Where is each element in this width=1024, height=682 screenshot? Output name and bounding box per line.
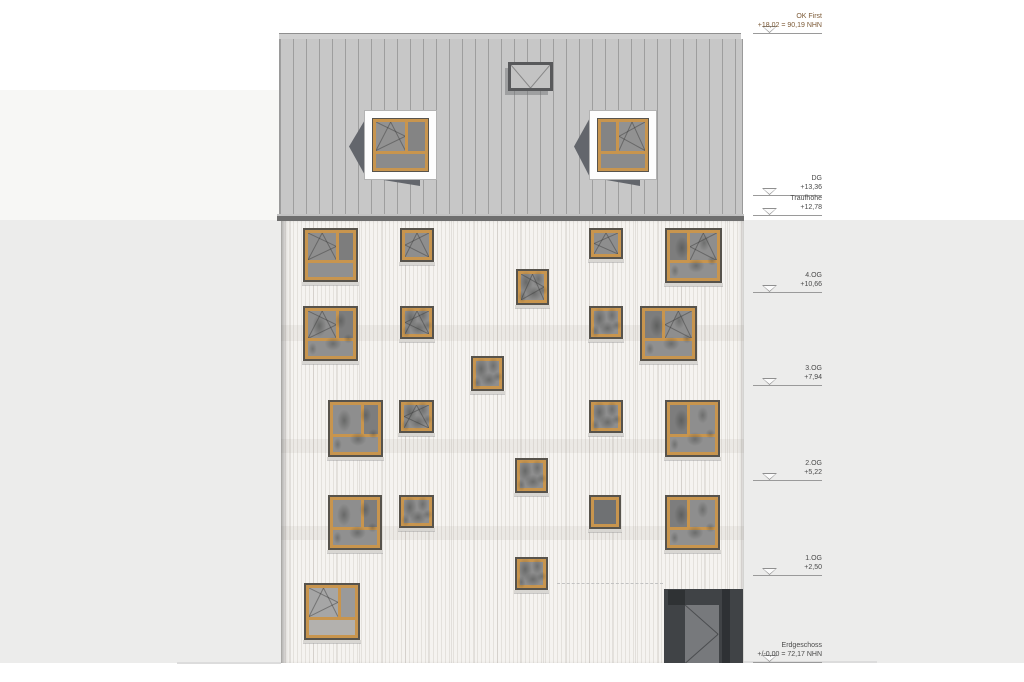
glazing-pane <box>520 562 543 585</box>
marker-value: +2,50 <box>804 564 822 572</box>
window <box>665 228 722 283</box>
window <box>589 306 623 339</box>
glazing-pane <box>670 263 717 278</box>
window-sill <box>470 391 505 394</box>
window <box>471 356 504 391</box>
glazing-pane <box>308 263 353 277</box>
marker-label: 3.OG <box>804 365 822 373</box>
window-panes <box>405 311 429 334</box>
dormer-frame <box>590 111 656 179</box>
glazing-pane <box>690 500 715 527</box>
dormer-window <box>372 118 429 172</box>
window-panes <box>333 405 378 452</box>
glazing-pane <box>333 530 377 545</box>
window-sill <box>514 493 549 496</box>
glazing-pane <box>308 233 336 260</box>
window-sill <box>588 433 624 436</box>
glazing-pane <box>376 122 405 151</box>
window <box>328 495 382 550</box>
glazing-pane <box>601 154 645 168</box>
window <box>400 228 434 262</box>
window-panes <box>645 311 692 356</box>
window <box>515 557 548 590</box>
marker-value: +/-0,00 = 72,17 NHN <box>757 651 822 659</box>
glazing-pane <box>690 233 717 260</box>
door-side-stripe <box>722 589 731 663</box>
roof-hatch <box>508 62 553 91</box>
window <box>515 458 548 493</box>
glazing-pane <box>619 122 645 151</box>
door-leaf <box>685 605 718 663</box>
glazing-pane <box>339 311 353 338</box>
window-sill <box>399 262 435 265</box>
marker-value: +13,36 <box>800 184 822 192</box>
window-sill <box>664 457 721 460</box>
window-sill <box>639 361 698 364</box>
glazing-pane <box>645 311 662 338</box>
datum-line <box>753 662 822 663</box>
window-sill <box>515 305 550 308</box>
window-panes <box>594 311 618 334</box>
glazing-pane <box>476 361 499 386</box>
datum-line <box>753 33 822 34</box>
glazing-pane <box>364 500 377 527</box>
window <box>303 306 358 361</box>
marker-text: Traufhöhe+12,78 <box>790 195 822 212</box>
glazing-pane <box>601 122 616 151</box>
marker-text: 1.OG+2,50 <box>804 555 822 572</box>
window <box>589 228 623 259</box>
marker-label: OK First <box>758 13 822 21</box>
glazing-pane <box>308 311 336 338</box>
window-sill <box>398 528 435 531</box>
marker-label: 4.OG <box>800 272 822 280</box>
glazing-pane <box>670 437 715 452</box>
window-panes <box>670 405 715 452</box>
window <box>328 400 383 457</box>
glazing-pane <box>645 341 692 356</box>
datum-line <box>753 480 822 481</box>
window <box>400 306 434 339</box>
marker-text: 2.OG+5,22 <box>804 460 822 477</box>
glazing-pane <box>309 588 338 617</box>
marker-value: +12,78 <box>790 204 822 212</box>
window-sill <box>327 457 384 460</box>
window-sill <box>303 640 361 643</box>
glazing-pane <box>405 311 429 334</box>
window <box>640 306 697 361</box>
window <box>304 583 360 640</box>
glazing-pane <box>308 341 353 356</box>
glazing-pane <box>690 405 715 434</box>
datum-triangle-icon-inner <box>764 189 776 194</box>
marker-label: Traufhöhe <box>790 195 822 203</box>
glazing-pane <box>364 405 378 434</box>
ground-line <box>177 662 281 664</box>
eaves-band <box>277 214 744 221</box>
window-panes <box>333 500 377 545</box>
window-panes <box>594 233 618 254</box>
marker-text: OK First+18,02 = 90,19 NHN <box>758 13 822 30</box>
glazing-pane <box>309 620 355 635</box>
glazing-pane <box>665 311 692 338</box>
marker-label: DG <box>800 175 822 183</box>
marker-label: 2.OG <box>804 460 822 468</box>
datum-line <box>753 292 822 293</box>
marker-value: +18,02 = 90,19 NHN <box>758 22 822 30</box>
marker-value: +5,22 <box>804 469 822 477</box>
glazing-pane <box>333 405 361 434</box>
window-panes <box>309 588 355 635</box>
window-panes <box>405 233 429 257</box>
window-sill <box>664 550 721 553</box>
glazing-pane <box>670 233 687 260</box>
dormer <box>590 111 656 179</box>
entrance-door <box>664 589 743 663</box>
window <box>589 495 621 529</box>
glazing-pane <box>376 154 425 168</box>
dormer-frame <box>365 111 436 179</box>
glazing-pane <box>404 500 429 523</box>
window-panes <box>520 463 543 488</box>
window-panes <box>308 233 353 277</box>
glazing-pane <box>670 500 687 527</box>
window <box>399 495 434 528</box>
datum-line <box>753 215 822 216</box>
window <box>589 400 623 433</box>
glazing-pane <box>339 233 353 260</box>
datum-line <box>753 575 822 576</box>
marker-label: 1.OG <box>804 555 822 563</box>
window-sill <box>327 550 383 553</box>
canopy-dashed-line <box>557 583 663 584</box>
window-sill <box>302 282 359 285</box>
glazing-pane <box>670 405 687 434</box>
window-panes <box>404 500 429 523</box>
glazing-pane <box>341 588 355 617</box>
elevation-drawing: OK First+18,02 = 90,19 NHNDG+13,36Traufh… <box>0 0 1024 682</box>
window <box>399 400 434 433</box>
datum-line <box>753 385 822 386</box>
glazing-pane <box>594 311 618 334</box>
window-sill <box>302 361 359 364</box>
glazing-pane <box>594 233 618 254</box>
window <box>516 269 549 305</box>
window-panes <box>404 405 429 428</box>
marker-text: DG+13,36 <box>800 175 822 192</box>
window-sill <box>588 259 624 262</box>
dormer <box>365 111 436 179</box>
window-sill <box>588 529 622 532</box>
dormer-window <box>597 118 649 172</box>
window-sill <box>514 590 549 593</box>
glazing-pane <box>333 500 361 527</box>
marker-value: +7,94 <box>804 374 822 382</box>
window-panes <box>520 562 543 585</box>
window-panes <box>476 361 499 386</box>
marker-text: Erdgeschoss+/-0,00 = 72,17 NHN <box>757 642 822 659</box>
door-recess-panel <box>668 590 685 605</box>
glazing-pane <box>405 233 429 257</box>
window-panes <box>670 233 717 278</box>
glazing-pane <box>521 274 544 300</box>
window <box>303 228 358 282</box>
window <box>665 400 720 457</box>
window-panes <box>376 122 425 168</box>
marker-label: Erdgeschoss <box>757 642 822 650</box>
window-panes <box>308 311 353 356</box>
glazing-pane <box>408 122 425 151</box>
window <box>665 495 720 550</box>
glazing-pane <box>333 437 378 452</box>
window-panes <box>594 405 618 428</box>
window-panes <box>601 122 645 168</box>
window-panes <box>670 500 715 545</box>
glazing-pane <box>594 405 618 428</box>
glazing-pane <box>404 405 429 428</box>
marker-value: +10,66 <box>800 281 822 289</box>
marker-text: 4.OG+10,66 <box>800 272 822 289</box>
background-band <box>0 90 290 220</box>
marker-text: 3.OG+7,94 <box>804 365 822 382</box>
window-panes <box>594 500 616 524</box>
glazing-pane <box>670 530 715 545</box>
window-sill <box>664 283 723 286</box>
window-sill <box>588 339 624 342</box>
glazing-pane <box>594 500 616 524</box>
window-sill <box>398 433 435 436</box>
window-sill <box>399 339 435 342</box>
datum-triangle-icon-inner <box>764 209 776 214</box>
glazing-pane <box>520 463 543 488</box>
window-panes <box>521 274 544 300</box>
